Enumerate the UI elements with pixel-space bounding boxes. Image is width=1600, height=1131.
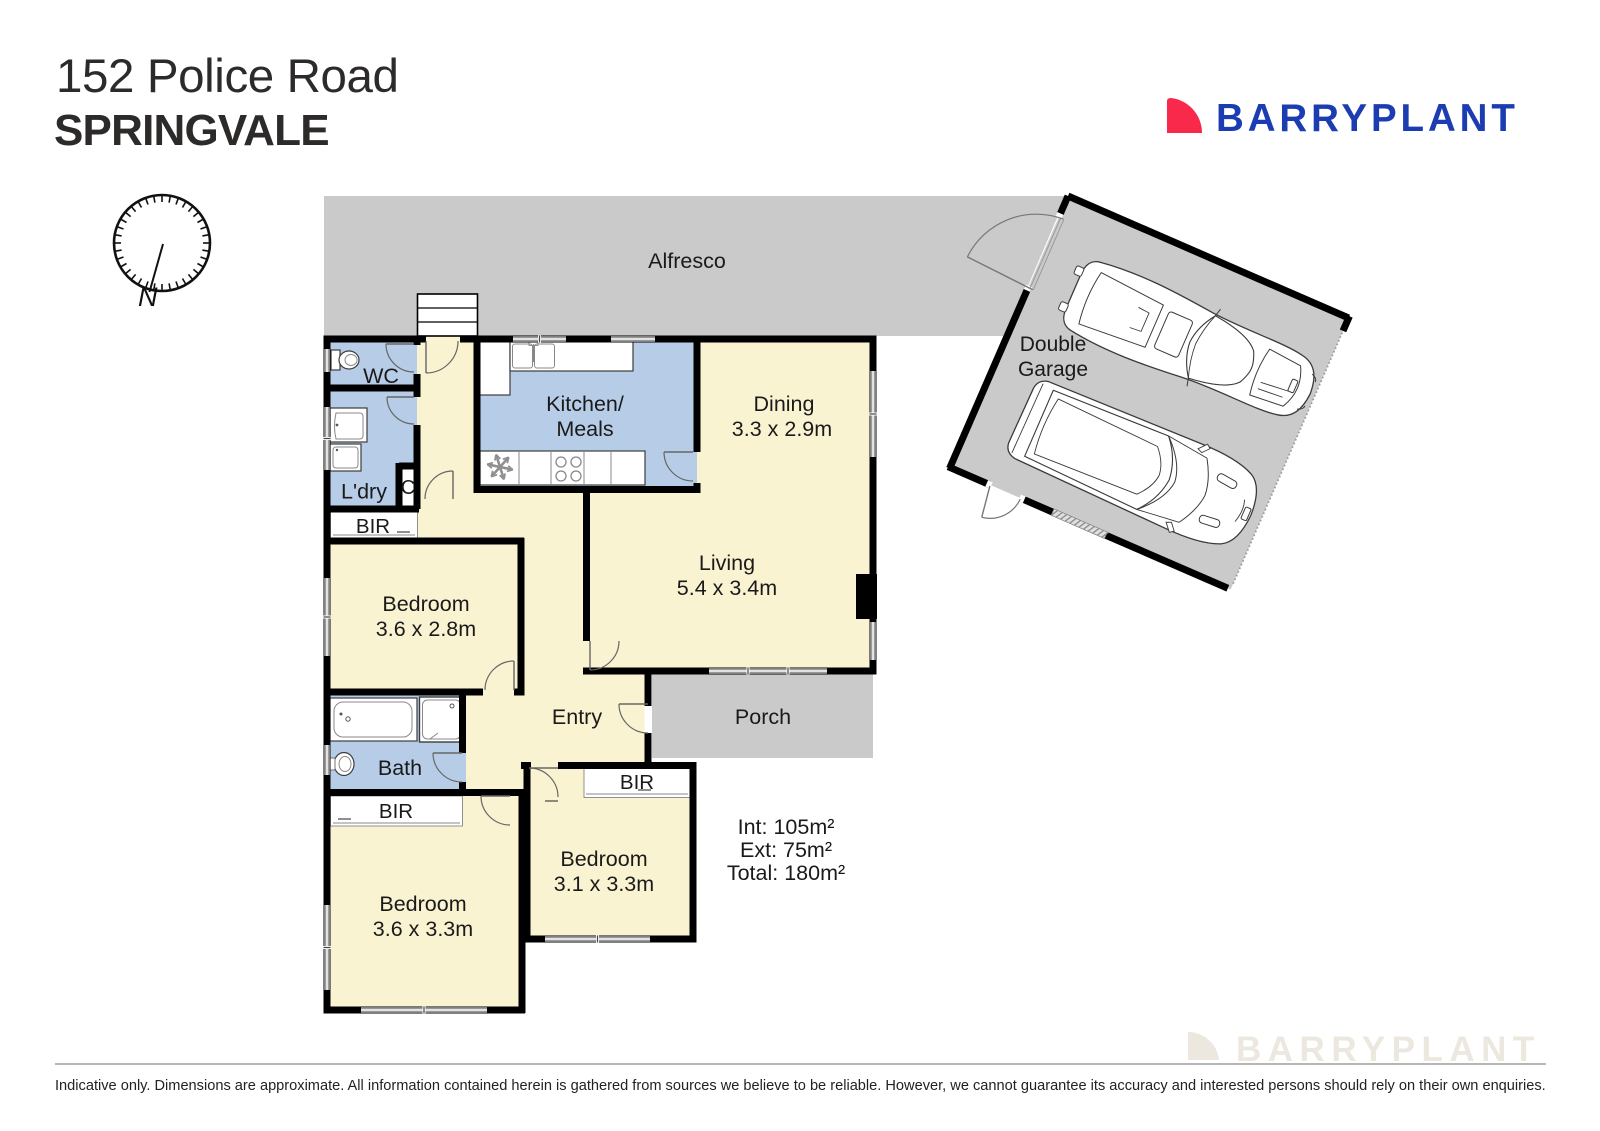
svg-text:BARRYPLANT: BARRYPLANT [1216, 97, 1519, 140]
svg-text:152 Police Road: 152 Police Road [56, 50, 399, 103]
svg-text:Bath: Bath [378, 756, 422, 780]
svg-text:BARRYPLANT: BARRYPLANT [1236, 1030, 1541, 1069]
svg-text:Bedroom: Bedroom [560, 847, 647, 871]
svg-text:Bedroom: Bedroom [379, 892, 466, 916]
svg-text:Ext: 75m²: Ext: 75m² [740, 838, 832, 862]
svg-text:Kitchen/: Kitchen/ [546, 392, 624, 416]
svg-text:Entry: Entry [552, 705, 602, 729]
svg-text:N: N [138, 282, 158, 312]
svg-text:BIR: BIR [356, 515, 390, 538]
svg-text:Total: 180m²: Total: 180m² [727, 861, 845, 885]
svg-text:Indicative only. Dimensions ar: Indicative only. Dimensions are approxim… [55, 1078, 1546, 1094]
svg-text:Living: Living [699, 551, 755, 575]
svg-text:SPRINGVALE: SPRINGVALE [54, 106, 329, 155]
svg-text:L'dry: L'dry [341, 480, 387, 504]
svg-text:Porch: Porch [735, 705, 791, 729]
svg-text:Meals: Meals [556, 417, 613, 441]
svg-text:3.6 x 3.3m: 3.6 x 3.3m [373, 917, 473, 941]
svg-text:Dining: Dining [754, 392, 815, 416]
svg-text:C: C [401, 477, 415, 499]
svg-text:WC: WC [363, 364, 399, 388]
svg-text:BIR: BIR [379, 800, 413, 823]
svg-text:5.4 x 3.4m: 5.4 x 3.4m [677, 576, 777, 600]
svg-text:BIR: BIR [620, 771, 654, 794]
svg-text:Bedroom: Bedroom [382, 592, 469, 616]
svg-text:3.3 x 2.9m: 3.3 x 2.9m [732, 417, 832, 441]
svg-text:3.1 x 3.3m: 3.1 x 3.3m [554, 872, 654, 896]
svg-text:Garage: Garage [1018, 358, 1088, 381]
svg-text:Double: Double [1020, 333, 1087, 356]
svg-text:Int: 105m²: Int: 105m² [738, 815, 835, 839]
svg-text:3.6 x 2.8m: 3.6 x 2.8m [376, 617, 476, 641]
svg-text:Alfresco: Alfresco [648, 249, 726, 273]
